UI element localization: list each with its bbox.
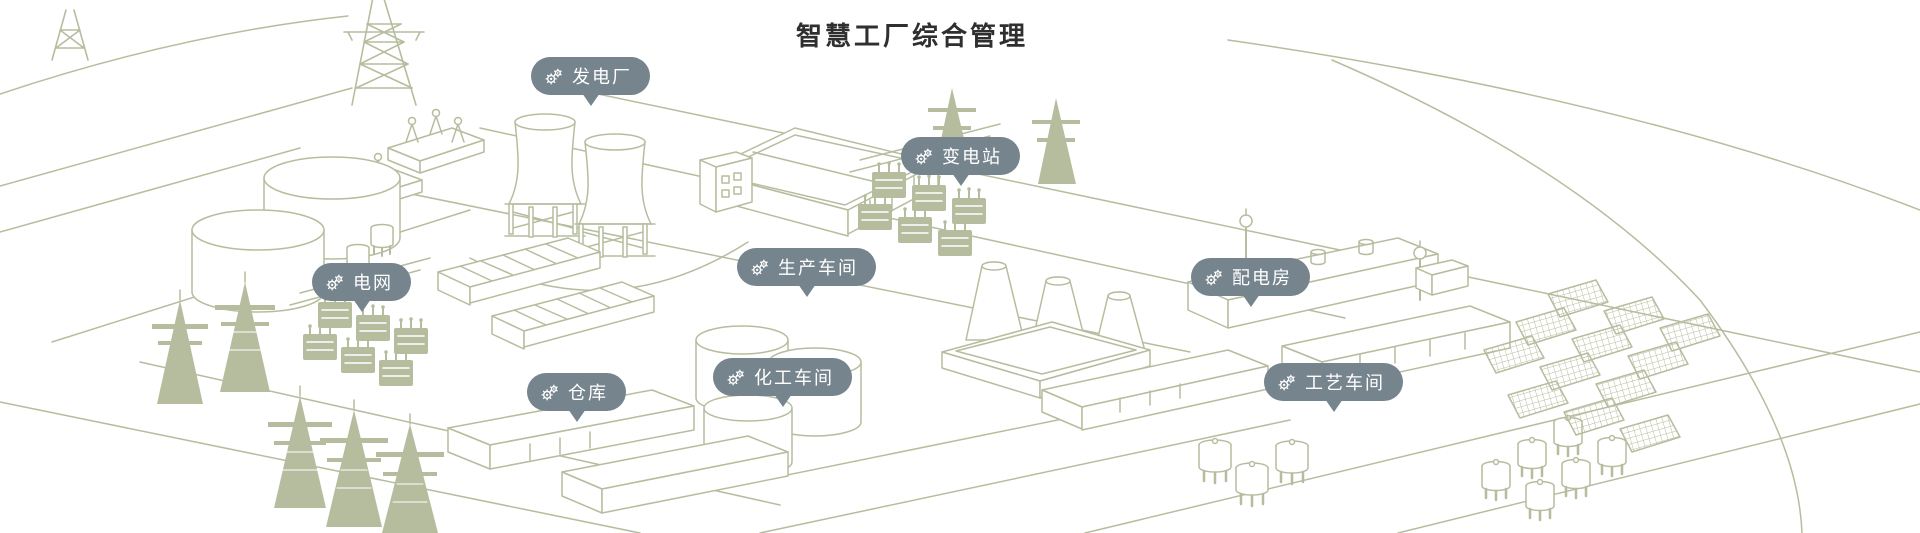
pin-substation[interactable]: 变电站 — [901, 137, 1020, 175]
pin-warehouse[interactable]: 仓库 — [527, 373, 626, 411]
gears-icon — [544, 67, 563, 86]
pin-label: 仓库 — [568, 379, 608, 405]
warehouse-buildings — [438, 238, 654, 349]
pin-label: 变电站 — [942, 143, 1002, 169]
pin-label: 生产车间 — [778, 254, 858, 280]
pin-label: 配电房 — [1232, 264, 1292, 290]
gears-icon — [1204, 268, 1223, 287]
gears-icon — [726, 368, 745, 387]
pin-label: 化工车间 — [754, 364, 834, 390]
pin-label: 工艺车间 — [1305, 369, 1385, 395]
small-footed-tanks — [1199, 416, 1626, 521]
pin-distribution-room[interactable]: 配电房 — [1191, 258, 1310, 296]
gears-icon — [750, 258, 769, 277]
smart-factory-dashboard: 智慧工厂综合管理 发电厂 变电站 电网 生产车间 配电房 仓库 化工车间 工艺车… — [0, 0, 1920, 533]
pin-process-workshop[interactable]: 工艺车间 — [1264, 363, 1403, 401]
transmission-tower-tall — [52, 0, 424, 105]
gears-icon — [540, 383, 559, 402]
pin-chemical-workshop[interactable]: 化工车间 — [713, 358, 852, 396]
transmission-towers-filled — [152, 272, 444, 533]
gears-icon — [914, 147, 933, 166]
pin-production-workshop[interactable]: 生产车间 — [737, 248, 876, 286]
factory-illustration — [0, 0, 1920, 533]
gears-icon — [325, 273, 344, 292]
pin-power-grid[interactable]: 电网 — [312, 263, 411, 301]
pin-power-plant[interactable]: 发电厂 — [531, 57, 650, 95]
pin-label: 发电厂 — [572, 63, 632, 89]
page-title: 智慧工厂综合管理 — [796, 16, 1028, 53]
gears-icon — [1277, 373, 1296, 392]
pin-label: 电网 — [353, 269, 393, 295]
